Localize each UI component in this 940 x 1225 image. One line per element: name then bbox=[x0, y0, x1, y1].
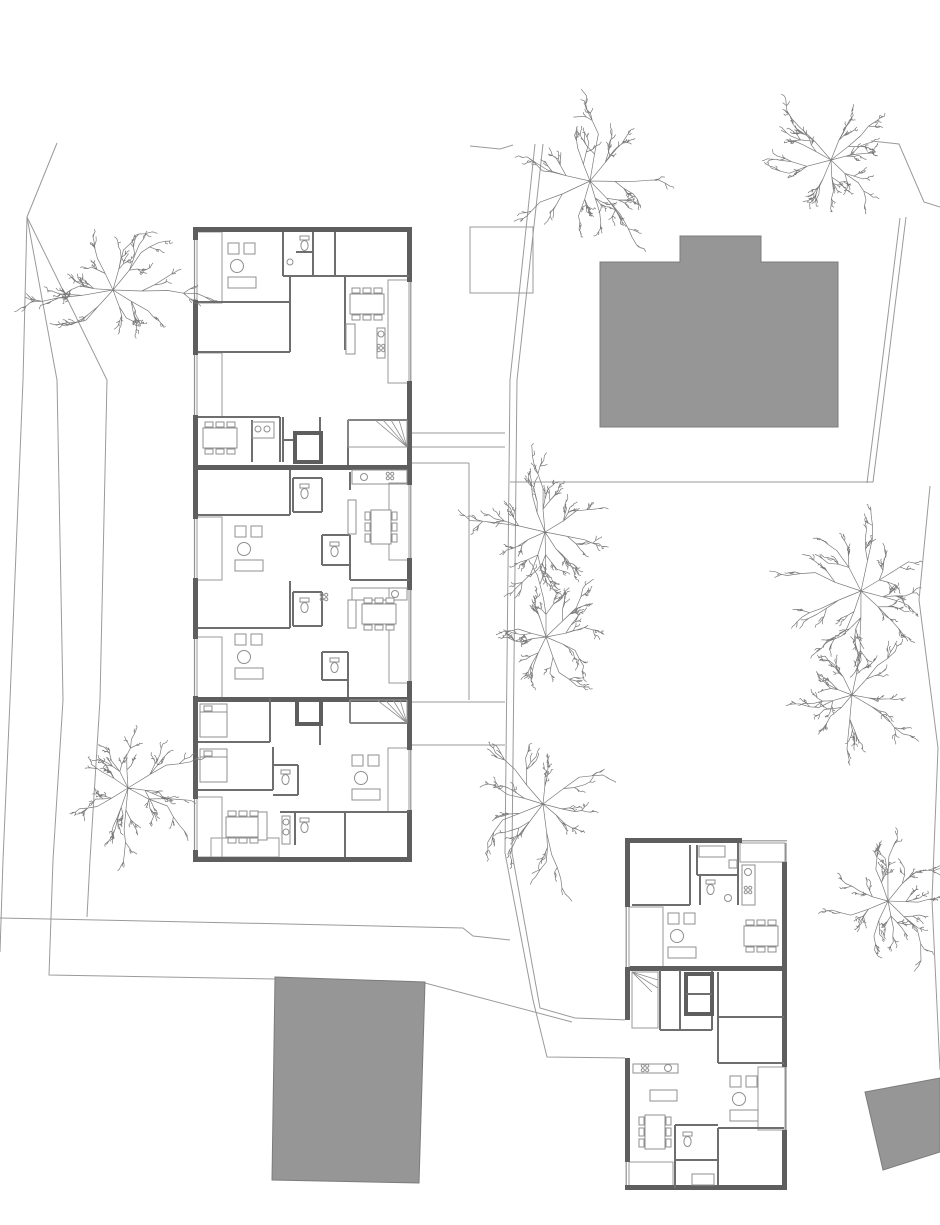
tree-top-center bbox=[514, 89, 674, 252]
storage-core-2 bbox=[297, 700, 321, 724]
tree-center-lower bbox=[496, 560, 604, 690]
tree-center-south bbox=[480, 742, 616, 901]
tree-west-upper bbox=[14, 229, 217, 338]
neighbor-building-south bbox=[272, 977, 425, 1183]
trees-layer bbox=[14, 89, 940, 971]
tree-top-right bbox=[762, 94, 885, 214]
east-boundary-lower bbox=[919, 486, 940, 1070]
tree-center-mid bbox=[458, 443, 609, 598]
tree-east-south bbox=[818, 827, 940, 971]
apartment-building-west bbox=[193, 227, 533, 862]
tree-east-upper bbox=[769, 504, 922, 677]
tree-west-lower bbox=[70, 725, 206, 871]
site-plan-page bbox=[0, 0, 940, 1225]
tree-east-mid bbox=[786, 634, 919, 765]
neighbor-building-southeast bbox=[865, 1078, 940, 1170]
east-walkway-inner bbox=[867, 218, 900, 483]
storage-core-1 bbox=[295, 433, 321, 462]
apartment-building-southeast bbox=[625, 838, 787, 1190]
north-connector bbox=[470, 145, 513, 149]
east-court-lines bbox=[412, 433, 505, 745]
entrance-steps-north bbox=[470, 227, 533, 293]
neighbor-building-north bbox=[600, 236, 838, 427]
site-plan-drawing bbox=[0, 0, 940, 1225]
south-boundary bbox=[0, 918, 510, 940]
southeast-connector bbox=[425, 983, 572, 1022]
east-boundary-upper bbox=[873, 217, 906, 482]
northeast-boundary bbox=[871, 141, 940, 207]
west-road-line-1 bbox=[0, 143, 57, 952]
